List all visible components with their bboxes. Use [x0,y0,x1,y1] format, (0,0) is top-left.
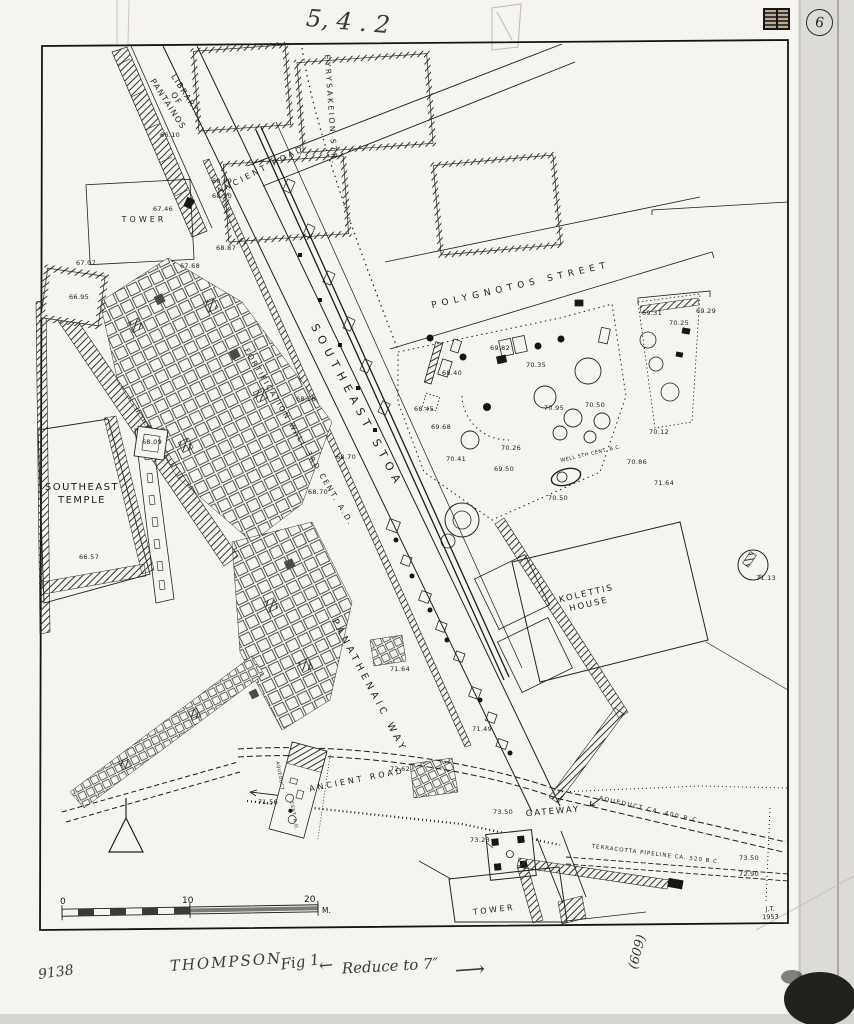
survey-triangle [109,798,143,852]
credit-initials: J.T. [765,905,775,913]
marble-block-fields [70,258,458,808]
roadside-features [386,519,512,756]
southeast-temple [38,416,174,603]
scanned-map-sheet: 6 J.T. 1953 0 10 20 M. LIBRARY OF PANTAI… [0,0,854,1024]
surveyor-credit: J.T. 1953 [762,905,779,922]
scale-twenty-label: 20 [304,895,315,905]
archive-stamp [763,8,790,30]
well-7113 [738,550,768,580]
polygnotos-street-lines [385,197,788,349]
central-excavation [398,300,626,548]
gateway-structures [486,830,684,924]
eyrysakeion-dotted-line [302,48,398,350]
scale-zero-label: 0 [60,897,66,907]
scan-right-margin [798,0,854,1024]
credit-year: 1953 [762,913,779,922]
right-strip-building [638,294,700,428]
scale-ten-label: 10 [182,896,193,906]
map-linework [0,0,854,1024]
kolettis-house [475,518,788,803]
scale-unit-label: M. [322,906,331,915]
